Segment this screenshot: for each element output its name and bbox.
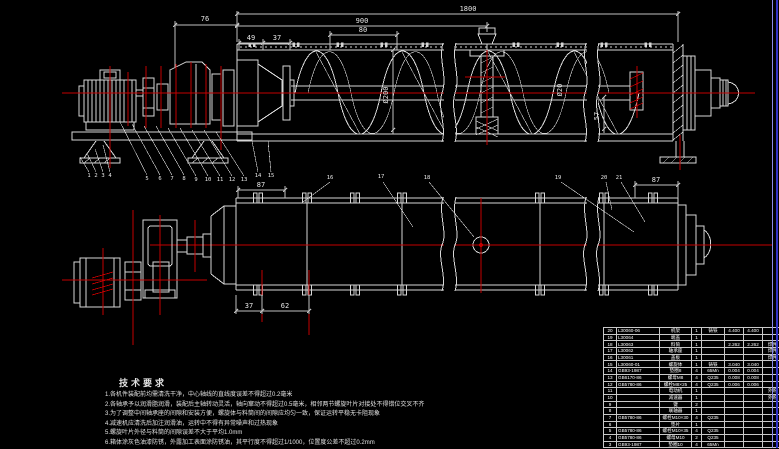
bom-cell-total [744,348,763,355]
bom-cell-total: 0.006 [744,381,763,388]
bom-cell-qty: 4 [692,428,702,435]
bom-cell-code: GB6170-86 [617,374,660,381]
bom-cell-material: 铸铁 [702,328,725,335]
drive-plan-geometry [62,206,224,345]
bom-cell-unit: 2.262 [725,341,744,348]
bom-cell-no: 5 [604,428,617,435]
bom-cell-unit: 0.006 [725,381,744,388]
dim-76: 76 [201,15,209,23]
bom-cell-qty: 4 [692,368,702,375]
bom-cell-code: GB5780-86 [617,381,660,388]
bom-cell-material [702,354,725,361]
flange-bolt [561,43,564,48]
bom-cell-unit: 4.400 [725,328,744,335]
bom-cell-code [617,394,660,401]
bom-cell-total [744,388,763,395]
bom-cell-unit [725,441,744,448]
bom-cell-total: 2.262 [744,341,763,348]
callout-number-10: 10 [205,177,212,183]
bom-cell-code [617,401,660,408]
bom-row: 8联轴器1 [604,408,779,415]
bom-cell-unit [725,348,744,355]
bom-cell-no: 16 [604,354,617,361]
bom-cell-total [744,354,763,361]
bom-cell-material: 65Mn [702,441,725,448]
bom-cell-code: L30064 [617,334,660,341]
bom-cell-unit [725,334,744,341]
bom-cell-total [744,414,763,421]
callout-number-15: 15 [268,173,275,179]
dim-87-left: 87 [257,181,265,189]
bom-cell-no: 9 [604,401,617,408]
bom-cell-name: 盖板 [660,354,692,361]
flange-bolt [297,43,300,48]
bom-row: 7GB5780-86螺栓M10×304Q235 [604,414,779,421]
bom-cell-qty: 1 [692,341,702,348]
bom-row: 17L30062轴承座1焊件 [604,348,779,355]
drive-train [72,62,252,168]
bom-cell-qty: 4 [692,441,702,448]
flange-bolt [336,43,339,48]
bom-cell-no: 13 [604,374,617,381]
bom-cell-qty: 1 [692,334,702,341]
bom-cell-unit: 3.040 [725,361,744,368]
bom-cell-name: 垫片 [660,421,692,428]
bom-cell-name: 电动机 [660,388,692,395]
dim-37-bottom: 37 [245,302,253,310]
bom-cell-no: 14 [604,368,617,375]
callout-number-16: 16 [327,175,334,181]
bom-cell-name: 垫圈8 [660,368,692,375]
bom-cell-code: L30063 [617,341,660,348]
bom-cell-total: 3.040 [744,361,763,368]
bom-cell-name: 螺母M10 [660,435,692,442]
bom-cell-qty: 1 [692,394,702,401]
bom-cell-code [617,388,660,395]
dim-87-right: 87 [652,176,660,184]
bom-row: 9键2 [604,401,779,408]
bom-cell-material [702,408,725,415]
bom-cell-no: 17 [604,348,617,355]
bom-row: 6垫片1 [604,421,779,428]
bom-cell-total [744,435,763,442]
bom-cell-name: 机架 [660,328,692,335]
bom-row: 12GB5780-86螺栓M8×254Q2350.0060.006 [604,381,779,388]
callout-number-18: 18 [424,175,431,181]
bom-cell-name: 端盖 [660,334,692,341]
bom-cell-no: 19 [604,334,617,341]
bom-cell-qty: 2 [692,435,702,442]
bom-cell-material [702,394,725,401]
bom-cell-unit [725,435,744,442]
tech-requirement-item: 2.各轴承予以润滑脂润滑，装配后主轴转动灵活，轴向窜动不得超过0.5毫米，相邻两… [105,401,450,411]
callout-number-1: 1 [87,173,90,179]
dim-37-top: 37 [273,34,281,42]
bom-cell-unit [725,354,744,361]
callout-number-9: 9 [194,177,197,183]
callout-number-12: 12 [229,177,236,183]
bom-cell-total [744,334,763,341]
bom-cell-code: L30062 [617,348,660,355]
bom-cell-material: Q235 [702,428,725,435]
bom-cell-total: 0.004 [744,368,763,375]
bom-cell-total: 0.008 [744,374,763,381]
dim-dia20: Ø20 [556,84,564,97]
bom-cell-material: Q235 [702,414,725,421]
bom-cell-qty: 2 [692,401,702,408]
dim-dia200: Ø200 [382,87,390,104]
flange-bolt [380,43,383,48]
tech-requirement-item: 1.各机件装配前均需清洗干净，中心轴线的直线度误差不得超过0.2毫米 [105,391,450,401]
bom-cell-total [744,421,763,428]
callout-number-20: 20 [601,175,608,181]
callout-number-7: 7 [170,176,173,182]
bom-cell-no: 15 [604,361,617,368]
bom-cell-qty: 4 [692,381,702,388]
bom-cell-qty: 1 [692,388,702,395]
bom-cell-name: 螺母M8 [660,374,692,381]
flange-bolt [644,43,647,48]
bom-cell-name: 键 [660,401,692,408]
bom-cell-qty: 4 [692,414,702,421]
dim-900: 900 [356,17,369,25]
end-bearing-assembly [630,56,739,170]
bom-cell-qty: 1 [692,408,702,415]
bom-cell-unit [725,388,744,395]
bom-cell-total [744,408,763,415]
bom-cell-no: 18 [604,341,617,348]
bom-row: 16L30061盖板1焊件 [604,354,779,361]
bom-row: 14GB93-1987垫圈8465Mn0.0040.004 [604,368,779,375]
bom-cell-code: GB93-1987 [617,368,660,375]
bom-cell-material [702,421,725,428]
callout-number-3: 3 [101,173,104,179]
callout-number-21: 21 [616,175,623,181]
bom-cell-code: L30060-06 [617,328,660,335]
bom-row: 3GB93-1987垫圈10465Mn [604,441,779,448]
bom-row: 18L30063料筒12.2622.262焊件 [604,341,779,348]
bom-cell-no: 8 [604,408,617,415]
bom-cell-material: Q235 [702,374,725,381]
dim-57: 57 [593,112,601,120]
flange-bolt [341,43,344,48]
callout-number-13: 13 [241,177,248,183]
bom-cell-material [702,334,725,341]
bom-cell-unit: 0.004 [725,368,744,375]
bom-table: 20L30060-06机架1铸铁4.4004.40019L30064端盖118L… [603,327,779,448]
callout-number-8: 8 [182,176,185,182]
bom-row: 15L30060-01螺旋体1铸铁3.0403.040 [604,361,779,368]
bom-cell-unit [725,414,744,421]
bom-cell-no: 20 [604,328,617,335]
bom-cell-no: 7 [604,414,617,421]
bom-cell-unit [725,394,744,401]
bom-cell-code: GB5780-86 [617,435,660,442]
bom-cell-no: 10 [604,394,617,401]
bom-cell-code: GB93-1987 [617,441,660,448]
bom-cell-material [702,388,725,395]
bom-cell-name: 螺栓M10×35 [660,428,692,435]
tech-requirement-item: 3.为了调整中间轴承座的间隙和安装方便，螺旋体与料筒间的间隙应均匀一致，保证运转… [105,410,450,420]
callout-number-17: 17 [378,174,385,180]
dim-80: 80 [359,26,367,34]
callout-number-19: 19 [555,175,562,181]
bom-cell-material: Q235 [702,381,725,388]
tech-requirements-title: 技术要求 [119,376,450,389]
bom-cell-total [744,401,763,408]
bom-cell-total [744,441,763,448]
bom-row: 5GB5780-86螺栓M10×354Q235 [604,428,779,435]
bom-cell-code: L30061 [617,354,660,361]
flange-bolt [421,43,424,48]
bom-cell-qty: 1 [692,421,702,428]
tech-requirement-item: 6.箱体涂灰色油漆防锈，外露加工表面涂防锈油，其平行度不得超过1/1000，位置… [105,439,450,449]
flange-bolt [649,43,652,48]
bom-cell-unit [725,401,744,408]
bom-row: 19L30064端盖1 [604,334,779,341]
technical-requirements: 技术要求 1.各机件装配前均需清洗干净，中心轴线的直线度误差不得超过0.2毫米 … [105,376,450,449]
bom-cell-unit [725,421,744,428]
tech-requirement-item: 5.螺旋叶片外径与料筒的间隙误差不大于平均1.0mm [105,429,450,439]
bom-cell-material [702,348,725,355]
bom-cell-qty: 1 [692,348,702,355]
bom-cell-no: 11 [604,388,617,395]
flange-bolt [517,43,520,48]
bom-cell-total [744,428,763,435]
callout-number-5: 5 [145,176,148,182]
bom-cell-material: 铸铁 [702,361,725,368]
bom-cell-material: Q235 [702,435,725,442]
bom-cell-material [702,341,725,348]
callout-number-11: 11 [217,177,224,183]
bom-cell-unit [725,408,744,415]
dim-62: 62 [281,302,289,310]
bom-cell-name: 垫圈10 [660,441,692,448]
callout-numbers: 123456789101112131415161718192021 [87,173,622,183]
frame-border-outer [776,0,778,448]
bom-row: 13GB6170-86螺母M84Q2350.0080.008 [604,374,779,381]
bom-cell-no: 12 [604,381,617,388]
bom-cell-qty: 1 [692,328,702,335]
flange-bolt [556,43,559,48]
bom-cell-code [617,408,660,415]
bom-cell-name: 轴承座 [660,348,692,355]
bom-cell-name: 螺栓M8×25 [660,381,692,388]
callout-number-14: 14 [255,173,262,179]
bom-cell-qty: 4 [692,374,702,381]
bom-cell-code: GB5780-86 [617,414,660,421]
bom-row: 11电动机1外购 [604,388,779,395]
bom-row: 10减速器1外购 [604,394,779,401]
bom-cell-code: L30060-01 [617,361,660,368]
bom-cell-qty: 1 [692,361,702,368]
upper-view-geometry [62,28,755,170]
bom-cell-material [702,401,725,408]
bom-cell-code: GB5780-86 [617,428,660,435]
flange-bolt [426,43,429,48]
flange-bolt [605,43,608,48]
bom-cell-name: 螺旋体 [660,361,692,368]
bom-cell-material: 65Mn [702,368,725,375]
frame-border-inner [772,0,773,448]
dim-1800: 1800 [460,5,477,13]
bom-cell-no: 4 [604,435,617,442]
bom-row: 20L30060-06机架1铸铁4.4004.400 [604,328,779,335]
bom-cell-total: 4.400 [744,328,763,335]
callout-number-6: 6 [158,176,161,182]
bom-cell-name: 联轴器 [660,408,692,415]
flange-bolt [292,43,295,48]
lower-break-lines [441,196,600,292]
flange-bolt [385,43,388,48]
tech-requirement-item: 4.减速机应清洗后加注润滑油，运转中不得有异常噪声和过热现象 [105,420,450,430]
callout-number-2: 2 [94,173,97,179]
bom-cell-qty: 1 [692,354,702,361]
bom-cell-name: 螺栓M10×30 [660,414,692,421]
bom-cell-total [744,394,763,401]
bom-cell-code [617,421,660,428]
bom-cell-no: 6 [604,421,617,428]
bom-cell-name: 减速器 [660,394,692,401]
bom-cell-no: 3 [604,441,617,448]
flange-bolt [512,43,515,48]
bom-row: 4GB5780-86螺母M102Q235 [604,435,779,442]
bom-cell-name: 料筒 [660,341,692,348]
dim-49: 49 [247,34,255,42]
bom-cell-unit [725,428,744,435]
flange-bolt [600,43,603,48]
bom-cell-unit: 0.008 [725,374,744,381]
lower-view-geometry [150,193,772,335]
callout-number-4: 4 [108,173,112,179]
